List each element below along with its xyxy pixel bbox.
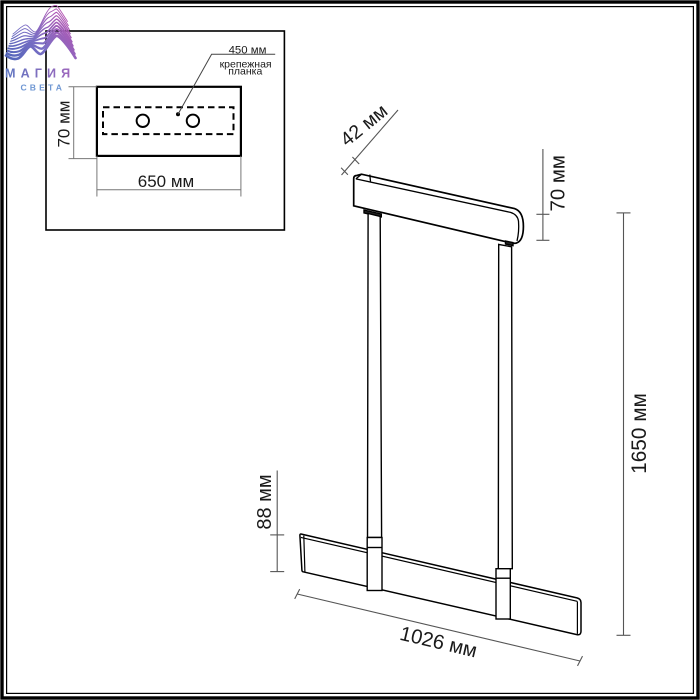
svg-text:650 мм: 650 мм xyxy=(138,172,194,191)
svg-text:1650 мм: 1650 мм xyxy=(628,393,651,474)
svg-text:70 мм: 70 мм xyxy=(547,155,569,211)
svg-text:МАГИЯ: МАГИЯ xyxy=(5,67,75,81)
svg-text:СВЕТА: СВЕТА xyxy=(21,83,66,93)
svg-text:планка: планка xyxy=(228,66,262,78)
svg-text:70 мм: 70 мм xyxy=(55,100,74,147)
svg-text:450 мм: 450 мм xyxy=(229,44,267,56)
svg-text:88 мм: 88 мм xyxy=(254,474,276,529)
